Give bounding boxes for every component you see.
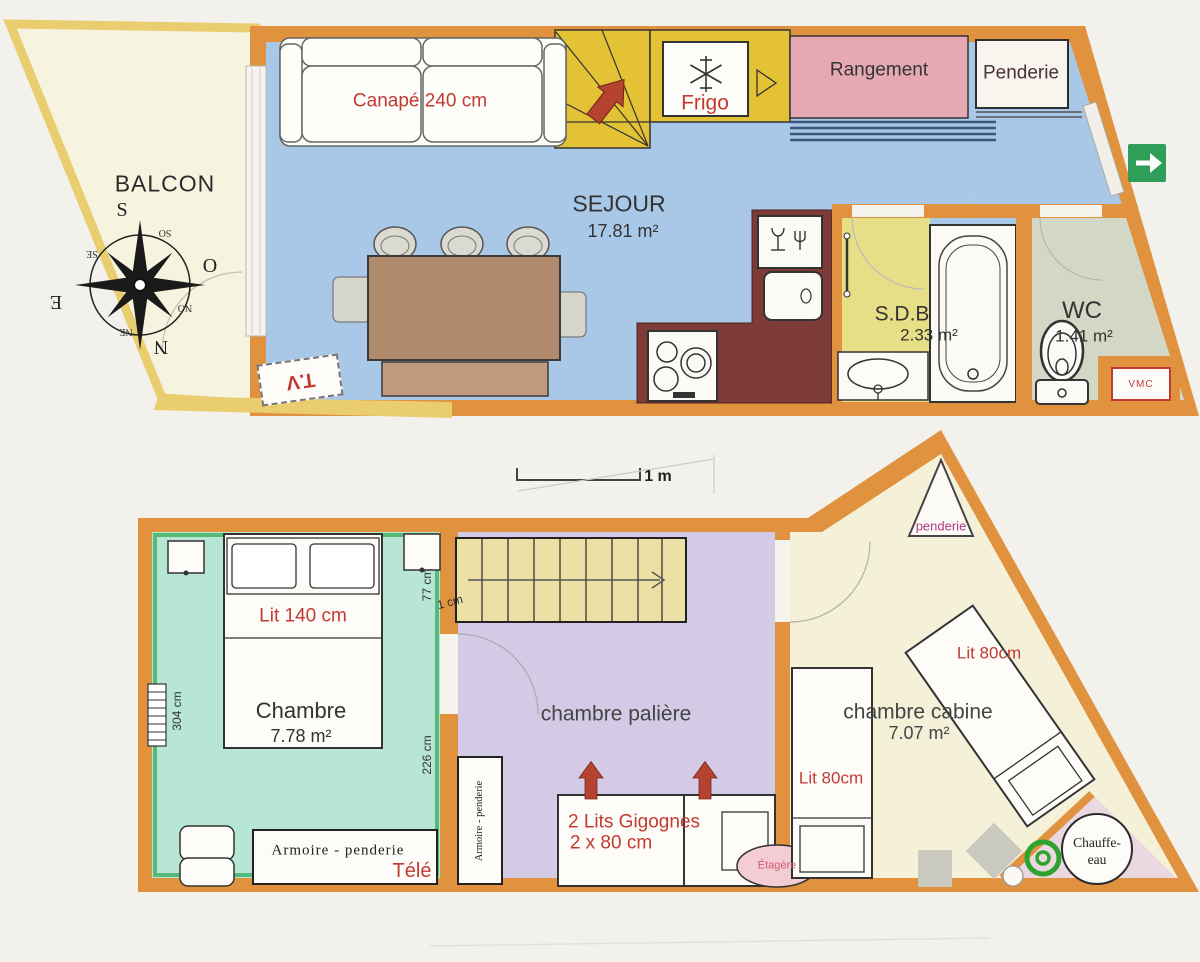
gigogne-beds-label: 2 Lits Gigognes [568, 813, 700, 832]
wc-left-wall [1016, 204, 1032, 404]
water-heater-line2: eau [1088, 852, 1107, 867]
exit-arrow-icon [1128, 144, 1166, 182]
compass-south-label: S [116, 200, 127, 220]
landing-room-label: chambre palière [541, 704, 692, 725]
sofa-label: Canapé 240 cm [353, 92, 487, 111]
radiator [148, 684, 166, 746]
cabin-wardrobe-label: penderie [916, 520, 967, 533]
scale-label: 1 m [644, 469, 672, 485]
staircase-upper [555, 30, 650, 148]
staircase-lower [456, 538, 686, 622]
dining-table [368, 256, 560, 360]
wardrobe-upper-label: Penderie [983, 64, 1059, 83]
kitchen-sink [764, 272, 822, 320]
cabin-room-area: 7.07 m² [888, 724, 949, 742]
bathroom-door [852, 205, 924, 217]
water-heater-line1: Chauffe- [1073, 835, 1121, 850]
tv-label: T.V [284, 367, 316, 394]
landing-wardrobe-label: Armoire - penderie [475, 781, 486, 861]
bathroom-label: S.D.B [875, 304, 930, 325]
compass-north-label: N [154, 337, 168, 357]
floor-plan-page: BALCON Canapé 240 cm SEJOUR 17.81 m² Fri… [0, 0, 1200, 962]
scan-artifact [430, 938, 990, 946]
bedroom-door [440, 634, 458, 714]
dim-77: 77 cm [421, 569, 433, 602]
bedroom-area: 7.78 m² [270, 727, 331, 745]
upper-floor-plan [10, 24, 1199, 494]
tele-label: Télé [393, 861, 432, 881]
storage-label: Rangement [830, 61, 928, 80]
washbasin [838, 352, 928, 400]
small-disc [1003, 866, 1023, 886]
compass-se-label: SE [86, 248, 98, 258]
gigogne-beds-size: 2 x 80 cm [570, 834, 652, 853]
compass-east-label: E [50, 292, 62, 312]
bedroom-seat [180, 826, 234, 886]
living-room-label: SEJOUR [572, 193, 665, 216]
bed-140-label: Lit 140 cm [259, 607, 347, 626]
scale-bar [517, 455, 714, 494]
compass-ne-label: NE [119, 326, 132, 336]
bedroom-wardrobe-label: Armoire - penderie [272, 844, 405, 859]
cabin-stool [918, 850, 952, 887]
wc-label: WC [1062, 299, 1102, 323]
dim-304: 304 cm [171, 691, 183, 730]
bedroom-label: Chambre [256, 700, 346, 722]
dim-226: 226 cm [421, 735, 433, 774]
vmc-label: VMC [1128, 380, 1153, 390]
bathroom-area: 2.33 m² [900, 327, 958, 344]
compass-nw-label: NO [178, 302, 192, 312]
fridge-label: Frigo [681, 93, 729, 114]
wc-area: 1.41 m² [1055, 328, 1113, 345]
compass-sw-label: SO [159, 227, 172, 237]
dishwasher [758, 216, 822, 268]
cabin-room-label: chambre cabine [843, 702, 992, 723]
wc-door [1040, 205, 1102, 217]
cabin-door [775, 540, 790, 622]
compass-west-label: O [203, 256, 217, 276]
shelf-label: Étagère [758, 861, 797, 872]
bathtub [930, 225, 1016, 402]
stove [648, 331, 717, 401]
living-room-area: 17.81 m² [587, 222, 658, 240]
balcony-label: BALCON [115, 173, 216, 196]
balcony-area [10, 24, 256, 404]
dining-bench [382, 362, 548, 396]
water-heater-label: Chauffe- eau [1073, 835, 1121, 869]
bed-80-left-label: Lit 80cm [799, 770, 863, 787]
bed-80-right-label: Lit 80cm [957, 645, 1021, 662]
